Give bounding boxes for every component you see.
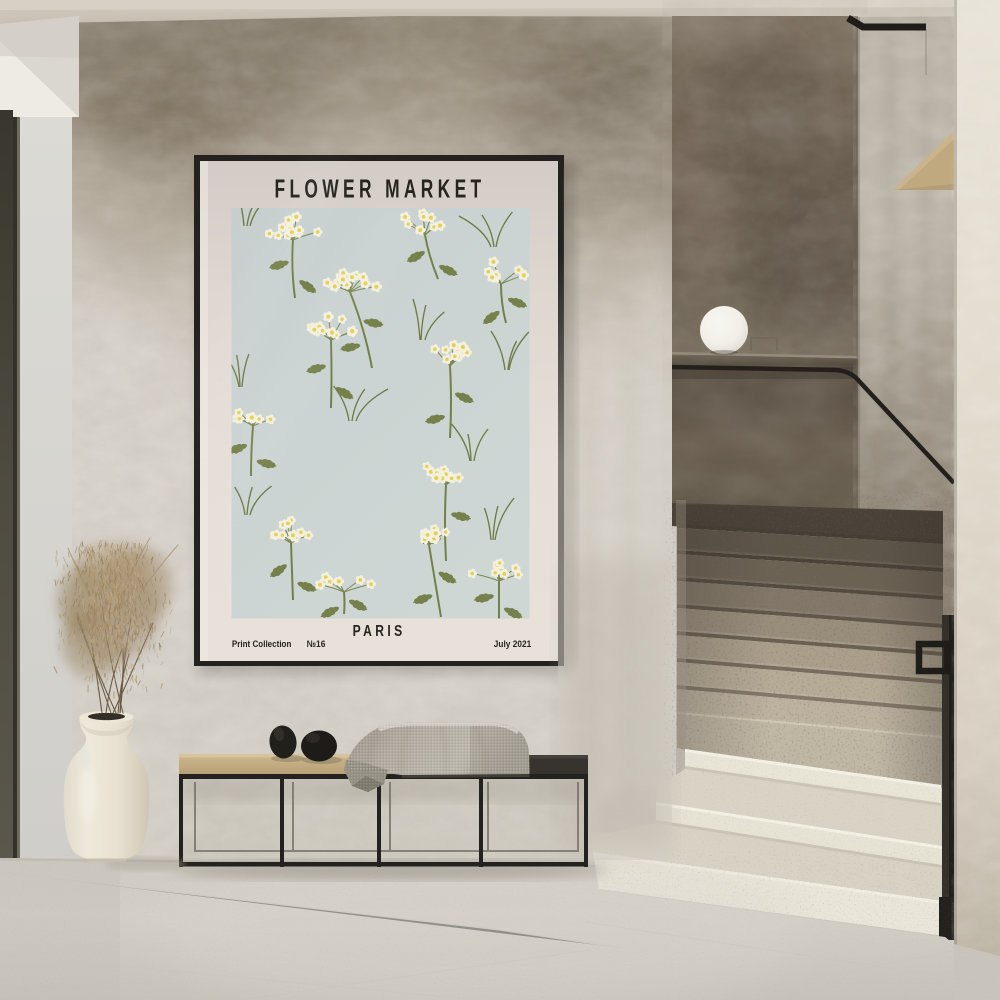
svg-text:№16: №16 [307,639,326,650]
svg-text:PARIS: PARIS [353,623,406,640]
svg-text:July 2021: July 2021 [494,639,532,650]
svg-text:Print Collection: Print Collection [232,639,292,650]
